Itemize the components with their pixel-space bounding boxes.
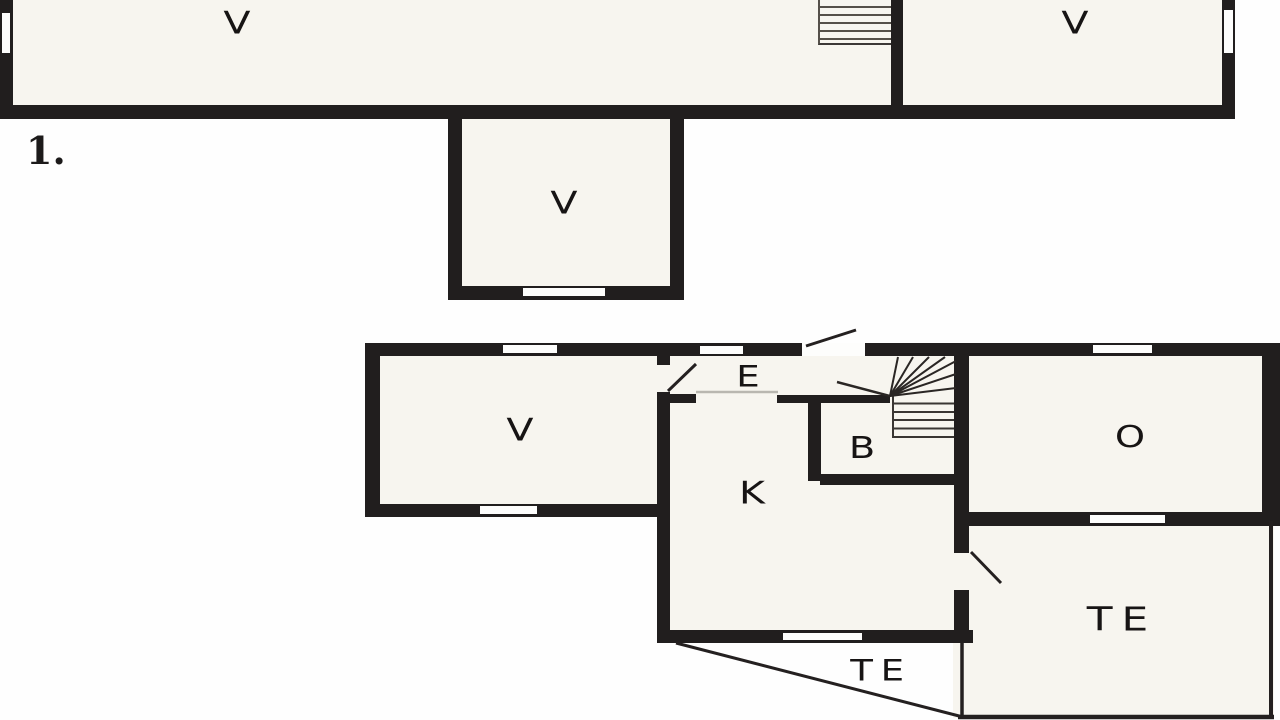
wall (820, 474, 955, 485)
room-label-v-upper-right: V (1061, 9, 1088, 40)
room-label-v-upper-left: V (223, 9, 250, 40)
window (523, 288, 605, 296)
wall (808, 395, 821, 481)
wall (670, 394, 696, 403)
door-opening (954, 553, 969, 590)
terrace-edge-line (676, 643, 963, 717)
wall (448, 119, 462, 300)
window (700, 346, 743, 354)
room-label-k-kitchen: K (739, 479, 765, 510)
wall (670, 119, 684, 300)
window (2, 13, 10, 53)
room-label-b-bath: B (849, 434, 875, 464)
window (480, 506, 537, 514)
door-opening (657, 365, 670, 392)
wall (954, 343, 969, 553)
wall (657, 392, 670, 643)
room-label-te-right: TE (1087, 603, 1157, 636)
upper-staircase (818, 0, 891, 45)
wall (657, 343, 670, 365)
wall (1262, 343, 1280, 526)
room-label-v-living: V (506, 416, 533, 447)
wall (891, 0, 903, 119)
room-label-v-bay: V (550, 189, 577, 220)
wall (777, 395, 890, 403)
room-label-te-triangle: TE (850, 657, 912, 686)
room-label-o-room: O (1115, 423, 1145, 453)
window (1093, 345, 1152, 353)
floor-plan-canvas: 1. V V V V E B K O TE TE (0, 0, 1280, 720)
window (1224, 10, 1233, 53)
lower-staircase (892, 396, 954, 438)
room-label-e-entry: E (736, 363, 759, 392)
entry-door-opening (802, 343, 865, 356)
window (1090, 515, 1165, 523)
window (503, 345, 557, 353)
floor-number-label: 1. (26, 128, 66, 173)
window (783, 633, 862, 640)
wall (365, 343, 380, 515)
upper-strip-floor (0, 0, 1235, 119)
kitchen-entry-floor (657, 343, 973, 643)
wall (0, 105, 1235, 119)
